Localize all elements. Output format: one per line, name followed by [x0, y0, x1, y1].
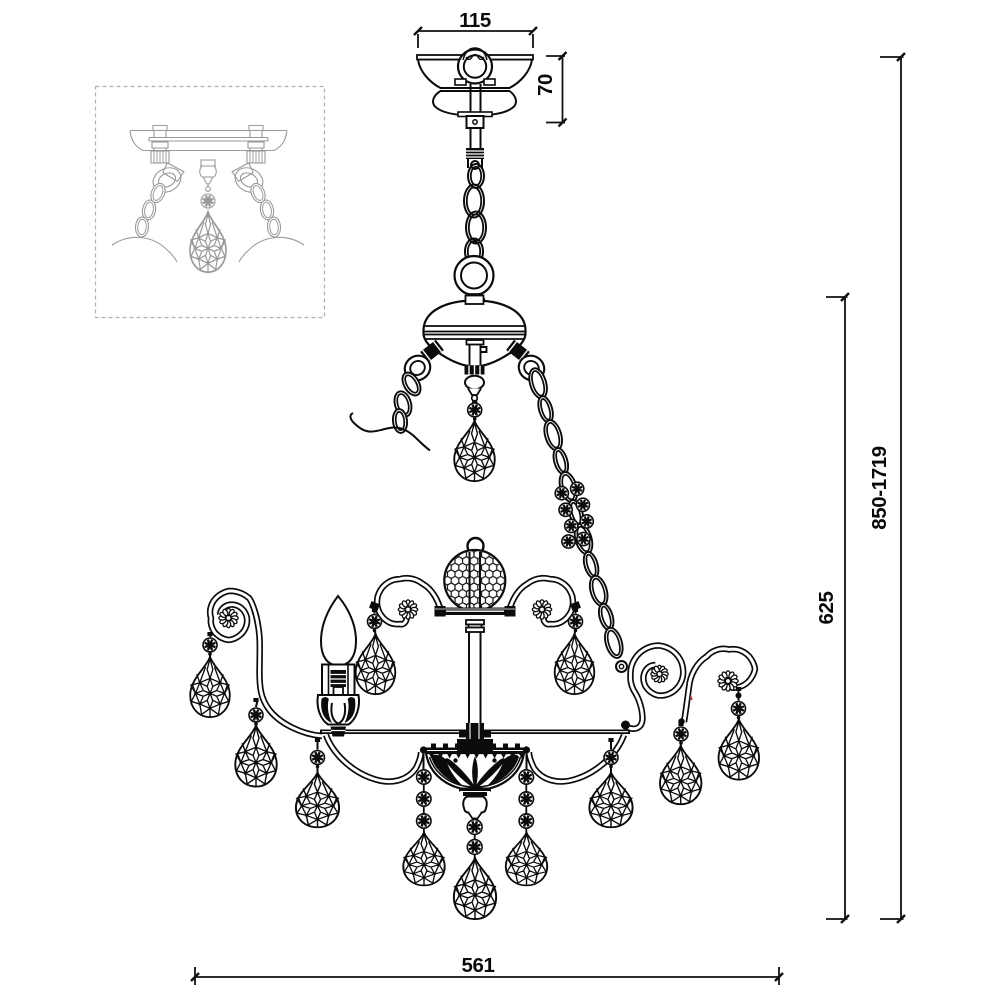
svg-text:115: 115: [459, 9, 491, 32]
svg-text:625: 625: [815, 591, 838, 624]
svg-text:70: 70: [534, 74, 557, 96]
svg-text:850-1719: 850-1719: [868, 446, 891, 529]
svg-text:561: 561: [461, 954, 494, 977]
